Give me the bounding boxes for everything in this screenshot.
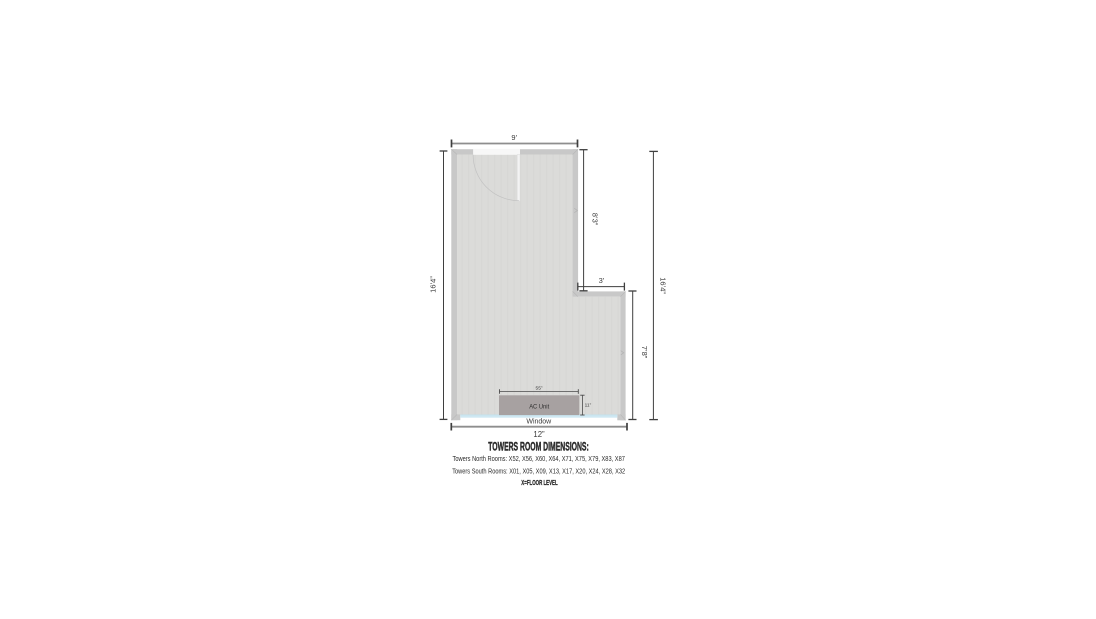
svg-text:16’4”: 16’4” <box>428 276 437 293</box>
svg-text:Towers North Rooms: X52, X56,: Towers North Rooms: X52, X56, X60, X64, … <box>453 456 625 463</box>
svg-text:55”: 55” <box>536 386 543 392</box>
svg-text:Window: Window <box>526 419 552 426</box>
svg-text:3’: 3’ <box>599 276 605 285</box>
svg-text:TOWERS ROOM DIMENSIONS:: TOWERS ROOM DIMENSIONS: <box>488 442 589 454</box>
svg-text:12”: 12” <box>533 430 545 439</box>
svg-text:Towers South Rooms: X01, X05,: Towers South Rooms: X01, X05, X09, X13, … <box>452 469 625 476</box>
svg-text:7’8”: 7’8” <box>640 346 649 359</box>
svg-text:16’4”: 16’4” <box>659 277 668 294</box>
svg-text:11”: 11” <box>585 402 592 408</box>
svg-text:AC Unit: AC Unit <box>529 404 549 411</box>
svg-text:8’3”: 8’3” <box>590 213 599 226</box>
svg-text:9’: 9’ <box>511 133 517 142</box>
svg-text:X=FLOOR LEVEL: X=FLOOR LEVEL <box>521 480 558 487</box>
